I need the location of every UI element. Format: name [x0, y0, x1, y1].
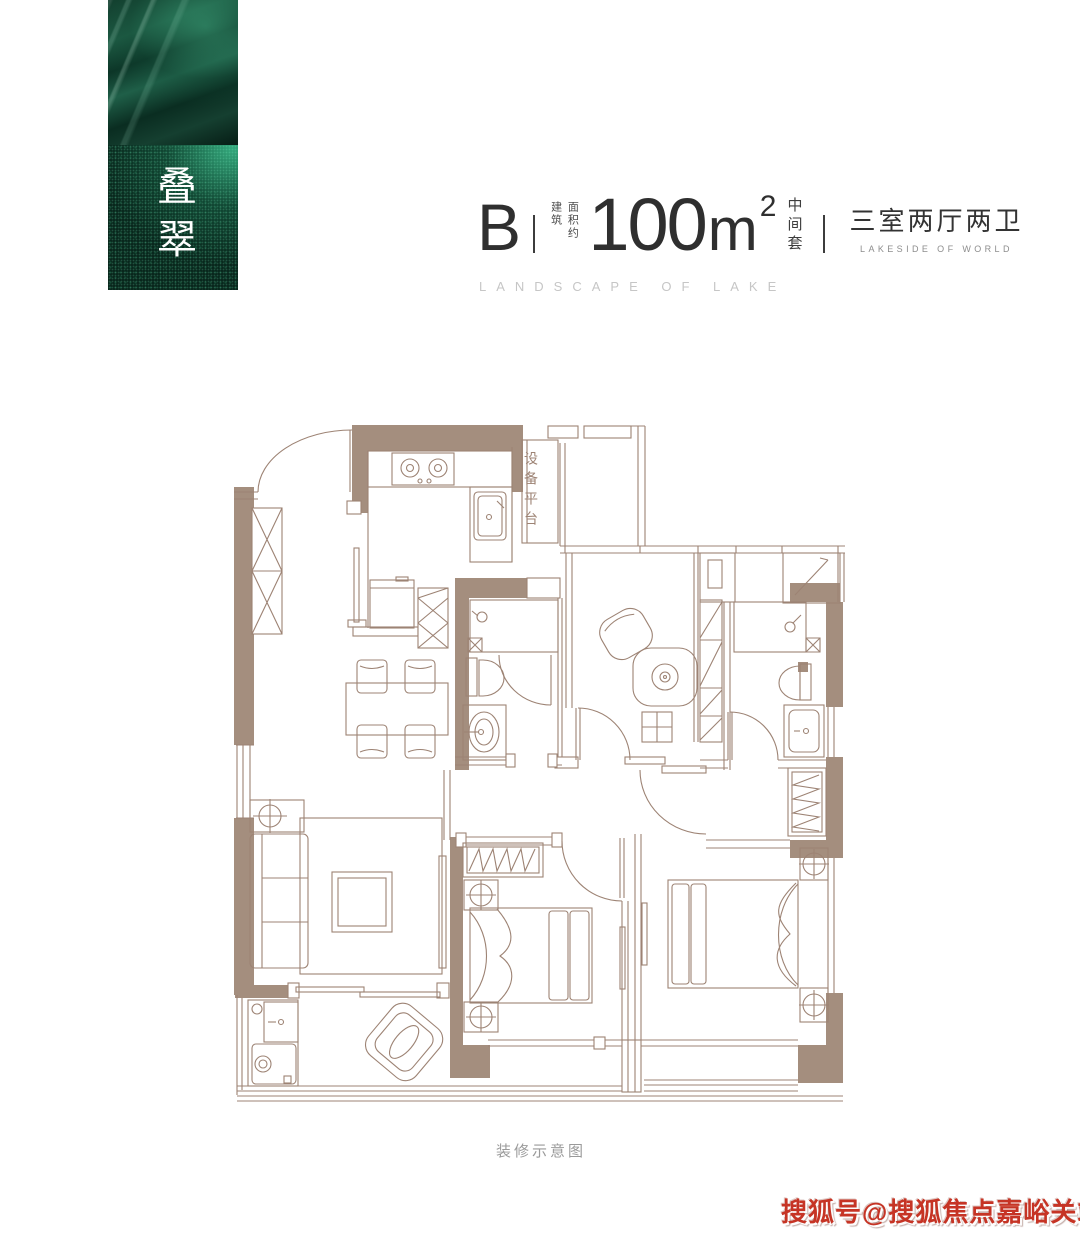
hall-closet-icon — [700, 600, 722, 742]
structure-layer — [234, 426, 845, 1101]
rug-outline — [300, 818, 442, 974]
coffee-table-icon — [332, 872, 392, 932]
plan-caption: 装修示意图 — [496, 1140, 586, 1161]
nightstand-icons-bedroom2 — [464, 880, 498, 1032]
vanity-guest-icon — [463, 705, 506, 760]
dining-table-icon — [346, 683, 448, 735]
bed-bedroom2-icon — [470, 908, 592, 1003]
stove-icon — [392, 453, 454, 485]
kitchen-sink-icon — [474, 492, 506, 540]
bed-master-icon — [668, 880, 798, 988]
side-table-lamp-icon — [250, 799, 304, 833]
wardrobe-master-icon — [788, 768, 826, 836]
page: 叠翠 B 建筑 面积约 100 m 2 中间套 三室两厅两卫 LAKESIDE … — [0, 0, 1080, 1239]
study-table-icon — [633, 648, 697, 706]
master-bath-door-arc — [730, 712, 778, 760]
guest-bath-door-arc — [499, 655, 551, 705]
sofa-icon — [250, 834, 308, 968]
lounge-chair-icon — [360, 998, 449, 1087]
study-stool-icon — [642, 712, 672, 742]
wardrobe-bedroom2-icon — [463, 843, 543, 877]
tv-cabinet-icon — [348, 548, 366, 627]
master-door-arc — [640, 770, 706, 834]
watermark: 搜狐号@搜狐焦点嘉峪关站 — [781, 1192, 1080, 1229]
fridge-icon — [370, 577, 414, 628]
dining-closet-icon — [418, 588, 448, 648]
tv-master-icon — [642, 903, 647, 965]
shower-master-icon — [734, 602, 806, 652]
shower-guest-icon — [470, 600, 558, 652]
floor-plan — [0, 0, 1080, 1239]
laundry-icon — [248, 1000, 298, 1086]
vanity-master-icon — [784, 705, 824, 757]
equipment-platform-label: 设备平台 — [524, 451, 538, 531]
entry-door-arc — [258, 430, 352, 492]
study-door-arc — [578, 708, 630, 760]
bedroom2-door-arc — [562, 841, 622, 901]
study-chair-icon — [594, 603, 658, 665]
dining-chairs-icon — [357, 660, 435, 758]
nightstand-icons-master — [799, 848, 829, 1022]
toilet-guest-icon — [466, 658, 504, 696]
